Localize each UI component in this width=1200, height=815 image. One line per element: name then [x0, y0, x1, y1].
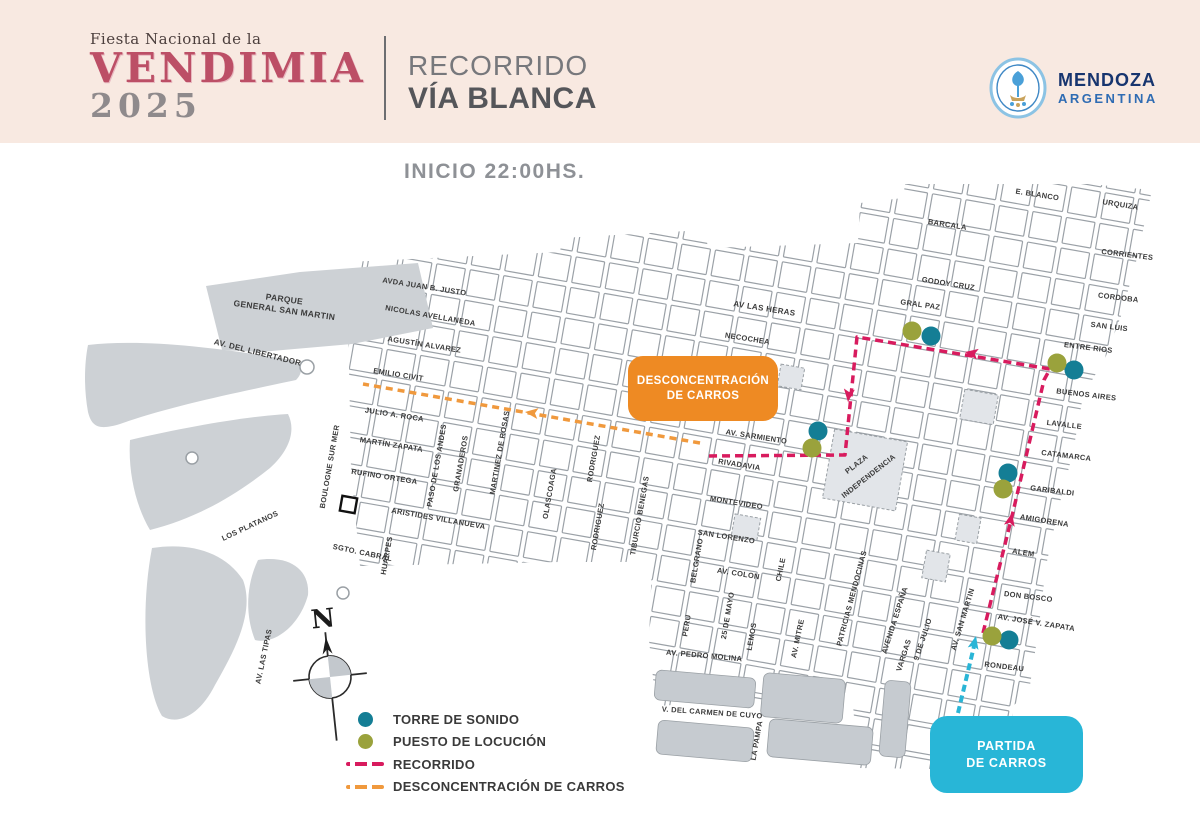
city-block [799, 140, 832, 171]
city-block [866, 151, 899, 182]
legend-label: RECORRIDO [393, 757, 475, 772]
city-block [561, 318, 594, 349]
city-block [334, 624, 367, 655]
legend-item-torre: TORRE DE SONIDO [346, 708, 625, 731]
city-block [556, 348, 589, 379]
city-block [1042, 529, 1075, 560]
page-title-line2: VÍA BLANCA [408, 82, 597, 117]
city-block [668, 494, 701, 525]
city-block [313, 746, 346, 777]
city-block [582, 196, 615, 227]
landmark-square [340, 496, 357, 513]
partida-line1: PARTIDA [977, 738, 1036, 754]
city-block [616, 202, 649, 233]
city-block [618, 580, 651, 611]
city-block [750, 225, 783, 256]
header-divider [384, 36, 386, 120]
city-block [1070, 565, 1103, 596]
city-block [579, 604, 612, 635]
city-block [720, 787, 753, 815]
city-block [835, 524, 868, 555]
city-block [608, 641, 641, 672]
city-block [727, 158, 760, 189]
city-block [926, 792, 959, 815]
city-block [856, 213, 889, 244]
city-block [639, 269, 672, 300]
city-block [768, 512, 801, 543]
city-block [483, 367, 516, 398]
city-block [589, 354, 622, 385]
city-block [1007, 334, 1040, 365]
city-block [996, 395, 1029, 426]
city-block [546, 599, 579, 630]
city-block [973, 328, 1006, 359]
city-block [1067, 187, 1100, 218]
city-block [612, 421, 645, 452]
mendoza-brand: MENDOZA ARGENTINA [988, 57, 1158, 119]
city-block [746, 445, 779, 476]
city-block [789, 201, 822, 232]
city-block [817, 237, 850, 268]
city-block [783, 231, 816, 262]
city-block [1015, 681, 1048, 712]
city-block [981, 675, 1014, 706]
city-block [517, 373, 550, 404]
announcer-post-marker [1048, 354, 1067, 373]
city-block [889, 218, 922, 249]
city-block [466, 270, 499, 301]
city-block [1103, 571, 1136, 602]
poster: NPARQUEGENERAL SAN MARTINAV. DEL LIBERTA… [0, 0, 1200, 815]
city-block [600, 293, 633, 324]
city-block [759, 762, 792, 793]
street-label: BOULOGNE SUR MER [318, 424, 342, 509]
city-block [660, 147, 693, 178]
city-block [396, 667, 429, 698]
plaza-block [777, 364, 804, 390]
city-block [796, 548, 829, 579]
city-block [908, 505, 941, 536]
city-block [373, 600, 406, 631]
city-block [438, 233, 471, 264]
city-block [672, 275, 705, 306]
city-block [893, 786, 926, 815]
city-block [842, 682, 875, 713]
city-block [794, 170, 827, 201]
city-block [716, 219, 749, 250]
city-block [1191, 272, 1200, 303]
city-block [502, 654, 535, 685]
city-block [435, 642, 468, 673]
desconcentracion-line2: DE CARROS [667, 389, 740, 404]
legend-label: PUESTO DE LOCUCIÓN [393, 734, 546, 749]
city-block [535, 660, 568, 691]
city-block [952, 450, 985, 481]
dispersal-dash-icon [346, 785, 384, 789]
city-block [679, 433, 712, 464]
city-block [522, 343, 555, 374]
city-block [755, 195, 788, 226]
city-block [1090, 254, 1123, 285]
city-block [956, 230, 989, 261]
city-block [401, 636, 434, 667]
plaza-block [955, 514, 981, 543]
page-title-line1: RECORRIDO [408, 50, 597, 82]
city-block [847, 652, 880, 683]
city-block [967, 169, 1000, 200]
legend-label: TORRE DE SONIDO [393, 712, 519, 727]
city-block [901, 346, 934, 377]
city-block [972, 139, 1005, 170]
city-block [1036, 559, 1069, 590]
announcer-post-marker [803, 439, 822, 458]
city-block [667, 305, 700, 336]
city-block [605, 263, 638, 294]
city-block [569, 666, 602, 697]
city-block [411, 386, 444, 417]
legend-item-locucion: PUESTO DE LOCUCIÓN [346, 731, 625, 754]
city-block [649, 208, 682, 239]
city-block [407, 606, 440, 637]
city-block [1131, 607, 1164, 638]
city-block [787, 798, 820, 815]
city-block [484, 556, 517, 587]
city-block [1109, 540, 1142, 571]
city-block [633, 299, 666, 330]
announcer-post-dot-icon [346, 734, 384, 749]
city-block [1137, 577, 1170, 608]
city-block [850, 243, 883, 274]
city-block [429, 672, 462, 703]
vendimia-logo: Fiesta Nacional de la VENDIMIA 2025 [90, 30, 366, 122]
city-block [1153, 485, 1186, 516]
mendoza-seal-icon [988, 57, 1048, 119]
city-block [577, 226, 610, 257]
city-block [251, 704, 284, 735]
city-block [1134, 199, 1167, 230]
city-block [890, 407, 923, 438]
city-block [896, 377, 929, 408]
city-block [1018, 273, 1051, 304]
barrio-block [760, 673, 846, 724]
city-block [652, 586, 685, 617]
city-block [602, 671, 635, 702]
plaza-block [822, 429, 907, 511]
city-block [979, 297, 1012, 328]
city-block [678, 244, 711, 275]
city-block [1173, 174, 1200, 205]
city-block [653, 775, 686, 806]
city-block [1006, 145, 1039, 176]
announcer-post-marker [903, 322, 922, 341]
city-block [310, 368, 343, 399]
city-block [1146, 327, 1179, 358]
brand-name: MENDOZA [1058, 70, 1158, 91]
city-block [914, 664, 947, 695]
city-block [614, 799, 647, 815]
city-block [279, 740, 312, 771]
city-block [711, 250, 744, 281]
city-block [348, 154, 381, 185]
city-block [801, 329, 834, 360]
city-block [544, 220, 577, 251]
city-block [683, 214, 716, 245]
city-block [551, 568, 584, 599]
header-banner: Fiesta Nacional de la VENDIMIA 2025 RECO… [0, 0, 1200, 143]
city-block [863, 560, 896, 591]
city-block [900, 157, 933, 188]
city-block [790, 390, 823, 421]
city-block [840, 304, 873, 335]
city-block [510, 215, 543, 246]
city-block [1136, 388, 1169, 419]
city-block [312, 557, 345, 588]
city-block [960, 797, 993, 815]
city-block [753, 793, 786, 815]
city-block [1174, 363, 1200, 394]
city-block [861, 182, 894, 213]
city-block [445, 581, 478, 612]
city-block [337, 216, 370, 247]
logo-title: VENDIMIA [90, 48, 366, 89]
city-block [984, 267, 1017, 298]
city-block [585, 574, 618, 605]
city-block [246, 735, 279, 766]
city-block [574, 635, 607, 666]
city-block [969, 547, 1002, 578]
city-block [505, 245, 538, 276]
city-block [884, 249, 917, 280]
city-block [1087, 663, 1120, 694]
city-block [550, 379, 583, 410]
city-block [479, 587, 512, 618]
city-block [507, 623, 540, 654]
city-block [440, 611, 473, 642]
legend-item-desconcentracion: DESCONCENTRACIÓN DE CARROS [346, 776, 625, 799]
city-block [1057, 248, 1090, 279]
city-block [857, 402, 890, 433]
city-block [1168, 205, 1200, 236]
city-block [1023, 242, 1056, 273]
city-block [933, 163, 966, 194]
legend: TORRE DE SONIDO PUESTO DE LOCUCIÓN RECOR… [346, 708, 625, 798]
city-block [854, 810, 887, 815]
city-block [791, 579, 824, 610]
city-block [1082, 693, 1115, 724]
city-block [1147, 516, 1180, 547]
city-block [1027, 809, 1060, 815]
city-block [929, 383, 962, 414]
city-block [869, 530, 902, 561]
city-block [285, 710, 318, 741]
city-block [1119, 479, 1152, 510]
city-block [1162, 235, 1195, 266]
city-block [868, 341, 901, 372]
city-block [443, 203, 476, 234]
city-block [1124, 260, 1157, 291]
legend-item-recorrido: RECORRIDO [346, 753, 625, 776]
city-block [489, 337, 522, 368]
city-block [940, 322, 973, 353]
city-block [523, 532, 556, 563]
city-block [1097, 412, 1130, 443]
roundabout [186, 452, 198, 464]
park-area [248, 559, 308, 641]
city-block [822, 207, 855, 238]
city-block [1080, 504, 1113, 535]
city-block [1020, 651, 1053, 682]
city-block [512, 593, 545, 624]
city-block [1106, 162, 1139, 193]
city-block [947, 480, 980, 511]
city-block [862, 371, 895, 402]
city-block [957, 419, 990, 450]
city-block [1141, 357, 1174, 388]
city-block [533, 281, 566, 312]
start-time: INICIO 22:00HS. [404, 160, 585, 184]
city-block [1157, 266, 1190, 297]
city-block [562, 507, 595, 538]
city-block [1125, 449, 1158, 480]
city-block [820, 804, 853, 815]
barrio-block [654, 670, 756, 709]
city-block [1185, 302, 1200, 333]
city-block [344, 374, 377, 405]
city-block [1152, 296, 1185, 327]
logo-year: 2025 [90, 89, 366, 122]
city-block [1028, 212, 1061, 243]
city-block [412, 575, 445, 606]
sound-tower-marker [922, 327, 941, 346]
city-block [356, 502, 389, 533]
legend-label: DESCONCENTRACIÓN DE CARROS [393, 779, 625, 794]
city-block [289, 490, 322, 521]
page-title: RECORRIDO VÍA BLANCA [408, 50, 597, 117]
city-block [1046, 309, 1079, 340]
city-block [539, 440, 572, 471]
city-block [778, 262, 811, 293]
city-block [625, 738, 658, 769]
city-block [463, 678, 496, 709]
city-block [376, 191, 409, 222]
city-block [541, 629, 574, 660]
city-block [627, 141, 660, 172]
city-block [1115, 699, 1148, 730]
city-block [450, 361, 483, 392]
city-block [644, 238, 677, 269]
city-block [371, 221, 404, 252]
city-block [444, 392, 477, 423]
city-block [345, 563, 378, 594]
city-block [761, 164, 794, 195]
compass-north-label: N [310, 603, 337, 635]
city-block [828, 176, 861, 207]
plaza-block [960, 389, 999, 424]
city-block [935, 352, 968, 383]
city-block [811, 268, 844, 299]
city-block [945, 291, 978, 322]
city-block [410, 197, 443, 228]
city-block [515, 184, 548, 215]
city-block [722, 189, 755, 220]
city-block [744, 256, 777, 287]
roundabout [337, 587, 349, 599]
city-block [404, 227, 437, 258]
city-block [1130, 418, 1163, 449]
city-block [417, 544, 450, 575]
city-block [613, 610, 646, 641]
desconcentracion-line1: DESCONCENTRACIÓN [637, 374, 769, 389]
city-block [767, 323, 800, 354]
park-area [145, 546, 246, 719]
city-block [991, 425, 1024, 456]
city-block [924, 413, 957, 444]
city-block [645, 427, 678, 458]
city-block [1012, 303, 1045, 334]
city-block [545, 410, 578, 441]
city-block [621, 171, 654, 202]
city-block [1169, 394, 1200, 425]
city-block [833, 146, 866, 177]
city-block [1140, 168, 1173, 199]
plaza-block [922, 550, 950, 582]
city-block [802, 518, 835, 549]
city-block [343, 185, 376, 216]
city-block [468, 648, 501, 679]
city-block [1121, 668, 1154, 699]
city-block [806, 298, 839, 329]
city-block [588, 165, 621, 196]
roundabout [300, 360, 314, 374]
city-block [283, 521, 316, 552]
city-block [792, 768, 825, 799]
city-block [990, 236, 1023, 267]
announcer-post-marker [994, 480, 1013, 499]
city-block [1104, 760, 1137, 791]
city-block [814, 646, 847, 677]
partida-callout: PARTIDA DE CARROS [930, 716, 1083, 793]
city-block [506, 434, 539, 465]
city-block [557, 538, 590, 569]
city-block [648, 805, 681, 815]
city-block [1180, 333, 1200, 364]
city-block [572, 257, 605, 288]
city-block [694, 152, 727, 183]
city-block [1158, 455, 1191, 486]
city-block [1086, 473, 1119, 504]
city-block [873, 310, 906, 341]
city-block [566, 287, 599, 318]
city-block [1164, 424, 1197, 455]
city-block [1073, 156, 1106, 187]
city-block [611, 232, 644, 263]
city-block [471, 239, 504, 270]
city-block [774, 481, 807, 512]
brand-country: ARGENTINA [1058, 91, 1158, 106]
city-block [538, 251, 571, 282]
sound-tower-marker [1065, 361, 1084, 380]
city-block [686, 781, 719, 812]
city-block [1142, 546, 1175, 577]
city-block [549, 190, 582, 221]
city-block [1062, 217, 1095, 248]
city-block [1054, 657, 1087, 688]
announcer-post-marker [983, 627, 1002, 646]
route-dash-icon [346, 762, 384, 766]
city-block [673, 464, 706, 495]
city-block [646, 616, 679, 647]
city-block [527, 312, 560, 343]
